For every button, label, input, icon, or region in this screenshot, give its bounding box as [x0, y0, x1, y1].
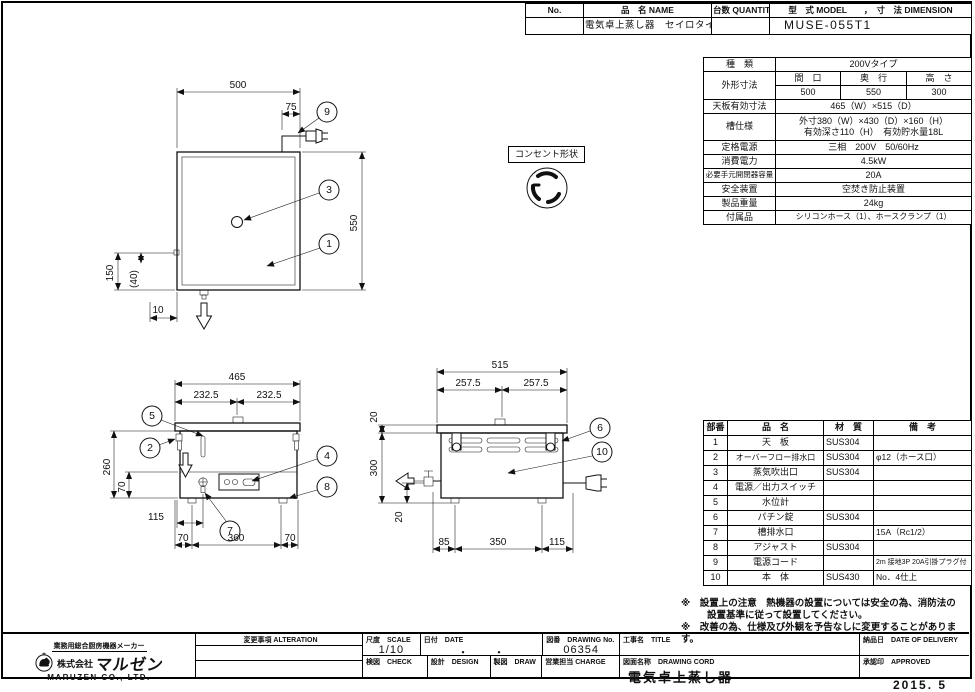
- part-no: 4: [704, 481, 728, 496]
- plan-dim-bottom: 10: [152, 305, 164, 316]
- table-row: 1 天 板 SUS304: [704, 436, 972, 451]
- part-name: 電源コード: [728, 556, 824, 571]
- balloon-5-number: 5: [149, 410, 155, 422]
- spec-outer-label: 外形寸法: [704, 72, 776, 100]
- side-dim-top: 20: [369, 411, 380, 423]
- front-dim-height: 260: [102, 458, 113, 475]
- parts-header-row: 部番 品 名 材 質 備 考: [704, 421, 972, 436]
- right-latch: [293, 434, 299, 450]
- overflow-arrow-icon: [179, 453, 192, 477]
- table-row: 2 オーバーフロー排水口 SUS304 φ12（ホース口）: [704, 451, 972, 466]
- part-material: SUS304: [824, 541, 874, 556]
- scale-value: 1/10: [363, 644, 420, 656]
- balloon-6: 6: [562, 418, 610, 441]
- table-row: 5 水位計: [704, 496, 972, 511]
- spec-weight-label: 製品重量: [704, 197, 776, 211]
- balloon-4: 4: [252, 446, 337, 481]
- balloon-10: 10: [508, 442, 612, 473]
- spec-type-label: 種 類: [704, 58, 776, 72]
- technical-views: 500 75 9 3: [0, 0, 700, 630]
- part-name: 本 体: [728, 571, 824, 586]
- front-left-foot: [188, 498, 196, 503]
- check-label: 検図 CHECK: [363, 656, 427, 667]
- balloon-9: 9: [298, 102, 337, 133]
- balloon-1-number: 1: [326, 238, 332, 250]
- parts-table: 部番 品 名 材 質 備 考 1 天 板 SUS304 2 オーバーフロー排水口…: [703, 420, 972, 586]
- draw-label: 製図 DRAW: [491, 656, 542, 667]
- table-row: 7 槽排水口 15A（Rc1/2）: [704, 526, 972, 541]
- part-material: [824, 556, 874, 571]
- plan-dim-cord: 75: [285, 102, 297, 113]
- front-right-foot: [279, 498, 287, 503]
- maker-block: 業務用総合厨房機器メーカー 株式会社 マルゼン MARUZEN CO., LTD…: [3, 634, 195, 677]
- spec-breaker-value: 20A: [776, 169, 972, 183]
- balloon-8-number: 8: [324, 481, 330, 493]
- plan-dim-left2: (40): [129, 270, 140, 288]
- plan-view: 500 75 9 3: [105, 80, 366, 329]
- balloon-9-number: 9: [324, 106, 330, 118]
- side-dim-b3: 115: [549, 537, 565, 548]
- spec-power-value: 三相 200V 50/60Hz: [776, 141, 972, 155]
- spec-tank-label: 槽仕様: [704, 114, 776, 141]
- part-no: 2: [704, 451, 728, 466]
- company-prefix: 株式会社: [57, 657, 93, 670]
- part-no: 6: [704, 511, 728, 526]
- left-latch: [176, 434, 182, 450]
- parts-col-name: 品 名: [728, 421, 824, 436]
- power-cord-icon: [563, 475, 607, 491]
- lid-knob: [233, 417, 243, 423]
- stamp-date: 2015. 5: [893, 678, 947, 692]
- part-material: [824, 481, 874, 496]
- charge-cell: 営業担当 CHARGE: [541, 656, 619, 678]
- part-no: 10: [704, 571, 728, 586]
- sign-grid: 尺度 SCALE 1/10 日付 DATE ・ ・ 図番 DRAWING No.…: [362, 634, 619, 677]
- col-qty: 台数 QUANTITY: [712, 4, 770, 18]
- charge-label: 営業担当 CHARGE: [542, 656, 619, 667]
- part-note: No．4仕上: [874, 571, 972, 586]
- spec-w-value: 500: [776, 86, 841, 100]
- side-view: 6 10 515 257.5 257.5 20 300 20: [369, 360, 612, 553]
- tank-drain-valve: [199, 478, 207, 493]
- spec-type-value: 200Vタイプ: [776, 58, 972, 72]
- drawing-no-value: 06354: [543, 644, 619, 656]
- spec-weight-value: 24kg: [776, 197, 972, 211]
- power-plug-icon: [282, 129, 328, 152]
- col-model: 型 式 MODEL ， 寸 法 DIMENSION: [770, 4, 972, 18]
- design-cell: 設計 DESIGN: [427, 656, 490, 678]
- model-number: MUSE-055T1: [770, 18, 972, 35]
- spec-safety-value: 空焚き防止装置: [776, 183, 972, 197]
- balloon-3-number: 3: [326, 184, 332, 196]
- side-dim-width: 515: [492, 360, 509, 371]
- side-dim-b1: 85: [438, 537, 450, 548]
- spec-consumption-value: 4.5kW: [776, 155, 972, 169]
- spec-tank-line1: 外寸380（W）×430（D）×160（H）: [777, 116, 970, 127]
- project-title-label: 工事名 TITLE: [620, 634, 859, 645]
- plan-dim-depth: 550: [349, 214, 360, 231]
- spec-breaker-label: 必要手元開閉器容量: [704, 169, 776, 183]
- balloon-2: 2: [140, 438, 175, 458]
- alteration-row-2: [196, 660, 362, 674]
- part-note: [874, 496, 972, 511]
- scale-cell: 尺度 SCALE 1/10: [363, 634, 420, 655]
- draw-cell: 製図 DRAW: [490, 656, 542, 678]
- front-dim-lower: 70: [117, 481, 128, 493]
- part-no: 1: [704, 436, 728, 451]
- part-material: SUS304: [824, 511, 874, 526]
- spec-safety-label: 安全装置: [704, 183, 776, 197]
- table-row: 8 アジャスト SUS304: [704, 541, 972, 556]
- front-dim-b2: 360: [228, 533, 245, 544]
- vent-slots: [449, 438, 558, 452]
- balloon-6-number: 6: [597, 422, 603, 434]
- spec-tank-line2: 有効深さ110（H） 有効貯水量18L: [777, 127, 970, 138]
- balloon-8: 8: [289, 477, 337, 498]
- part-note: [874, 541, 972, 556]
- balloon-2-number: 2: [147, 442, 153, 454]
- spec-consumption-label: 消費電力: [704, 155, 776, 169]
- plan-dim-left: 150: [105, 264, 116, 281]
- part-name: アジャスト: [728, 541, 824, 556]
- table-row: 3 蒸気吹出口 SUS304: [704, 466, 972, 481]
- front-dim-b3: 70: [284, 533, 296, 544]
- spec-d-label: 奥 行: [841, 72, 907, 86]
- part-no: 3: [704, 466, 728, 481]
- spec-tank-value: 外寸380（W）×430（D）×160（H） 有効深さ110（H） 有効貯水量1…: [776, 114, 972, 141]
- part-no: 8: [704, 541, 728, 556]
- spec-power-label: 定格電源: [704, 141, 776, 155]
- part-note: [874, 511, 972, 526]
- side-dim-half-right: 257.5: [523, 378, 548, 389]
- qty-value: [712, 18, 770, 35]
- part-no: 7: [704, 526, 728, 541]
- part-name: 水位計: [728, 496, 824, 511]
- side-right-foot: [538, 498, 546, 503]
- drain-arrow-icon: [197, 290, 212, 329]
- alteration-row-1: [196, 645, 362, 660]
- part-name: オーバーフロー排水口: [728, 451, 824, 466]
- front-dim-half-left: 232.5: [193, 390, 218, 401]
- table-row: 10 本 体 SUS430 No．4仕上: [704, 571, 972, 586]
- front-view: 5 2 4 8 7: [102, 372, 337, 549]
- drain-valve-icon: [396, 471, 441, 489]
- side-right-latch: [546, 433, 555, 451]
- spec-table: 種 類 200Vタイプ 外形寸法 間 口 奥 行 高 さ 500 550 300…: [703, 57, 972, 225]
- spec-accessory-label: 付属品: [704, 211, 776, 225]
- side-dim-leg: 20: [394, 511, 405, 523]
- spec-top-label: 天板有効寸法: [704, 100, 776, 114]
- part-note: [874, 466, 972, 481]
- part-name: 電源／出力スイッチ: [728, 481, 824, 496]
- spec-accessory-value: シリコンホース（1）、ホースクランプ（1）: [776, 211, 972, 225]
- parts-col-note: 備 考: [874, 421, 972, 436]
- date-cell: 日付 DATE ・ ・: [420, 634, 543, 655]
- part-material: [824, 526, 874, 541]
- lid-knob-side: [495, 419, 505, 425]
- part-note: 15A（Rc1/2）: [874, 526, 972, 541]
- part-note: [874, 436, 972, 451]
- note-line-2: 設置基準に従って設置してください。: [681, 610, 973, 622]
- balloon-4-number: 4: [324, 450, 330, 462]
- part-material: SUS430: [824, 571, 874, 586]
- part-name: 天 板: [728, 436, 824, 451]
- front-dim-half-right: 232.5: [256, 390, 281, 401]
- part-material: SUS304: [824, 436, 874, 451]
- delivery-label: 納品日 DATE OF DELIVERY: [860, 634, 969, 645]
- title-section: 工事名 TITLE 図面名称 DRAWING CORD 電気卓上蒸し器: [619, 634, 859, 677]
- alteration-section: 変更事項 ALTERATION: [195, 634, 362, 677]
- control-panel: [219, 474, 259, 490]
- balloon-3: 3: [244, 180, 339, 220]
- part-note: [874, 481, 972, 496]
- spec-top-value: 465（W）×515（D）: [776, 100, 972, 114]
- steam-outlet: [232, 217, 243, 228]
- parts-col-material: 材 質: [824, 421, 874, 436]
- spec-h-label: 高 さ: [907, 72, 972, 86]
- parts-col-no: 部番: [704, 421, 728, 436]
- drawing-name-value: 電気卓上蒸し器: [620, 667, 859, 686]
- check-cell: 検図 CHECK: [363, 656, 427, 678]
- note-line-1: ※ 設置上の注意 熱機器の設置については安全の為、消防法の: [681, 598, 973, 610]
- part-no: 9: [704, 556, 728, 571]
- part-name: 槽排水口: [728, 526, 824, 541]
- side-left-foot: [451, 498, 459, 503]
- part-no: 5: [704, 496, 728, 511]
- design-label: 設計 DESIGN: [428, 656, 490, 667]
- spec-w-label: 間 口: [776, 72, 841, 86]
- part-name: 蒸気吹出口: [728, 466, 824, 481]
- drawing-name-label: 図面名称 DRAWING CORD: [620, 656, 859, 667]
- side-dim-half-left: 257.5: [455, 378, 480, 389]
- delivery-section: 納品日 DATE OF DELIVERY 承認印 APPROVED: [859, 634, 969, 677]
- part-name: パチン錠: [728, 511, 824, 526]
- spec-d-value: 550: [841, 86, 907, 100]
- alteration-label: 変更事項 ALTERATION: [196, 634, 362, 645]
- maruzen-logo-icon: [34, 653, 54, 673]
- approved-label: 承認印 APPROVED: [860, 656, 969, 667]
- balloon-1: 1: [267, 234, 339, 266]
- spec-h-value: 300: [907, 86, 972, 100]
- water-level-gauge: [201, 436, 205, 457]
- company-logotype: マルゼン: [94, 651, 165, 675]
- part-note: φ12（ホース口）: [874, 451, 972, 466]
- balloon-10-number: 10: [596, 446, 608, 458]
- front-dim-b1: 70: [177, 533, 189, 544]
- side-dim-b2: 350: [490, 537, 507, 548]
- table-row: 9 電源コード 2m 接地3P 20A引掛プラグ付: [704, 556, 972, 571]
- front-dim-width: 465: [229, 372, 246, 383]
- table-row: 6 パチン錠 SUS304: [704, 511, 972, 526]
- drawing-no-cell: 図番 DRAWING No. 06354: [542, 634, 619, 655]
- side-left-latch: [452, 433, 461, 451]
- part-material: [824, 496, 874, 511]
- front-dim-drain: 115: [148, 512, 164, 523]
- table-row: 4 電源／出力スイッチ: [704, 481, 972, 496]
- part-material: SUS304: [824, 451, 874, 466]
- plan-dim-width: 500: [230, 80, 247, 91]
- part-material: SUS304: [824, 466, 874, 481]
- title-block: 業務用総合厨房機器メーカー 株式会社 マルゼン MARUZEN CO., LTD…: [3, 632, 969, 677]
- side-dim-height: 300: [369, 459, 380, 476]
- drawing-sheet: No. 品 名 NAME 台数 QUANTITY 型 式 MODEL ， 寸 法…: [0, 0, 975, 692]
- part-note: 2m 接地3P 20A引掛プラグ付: [874, 556, 972, 571]
